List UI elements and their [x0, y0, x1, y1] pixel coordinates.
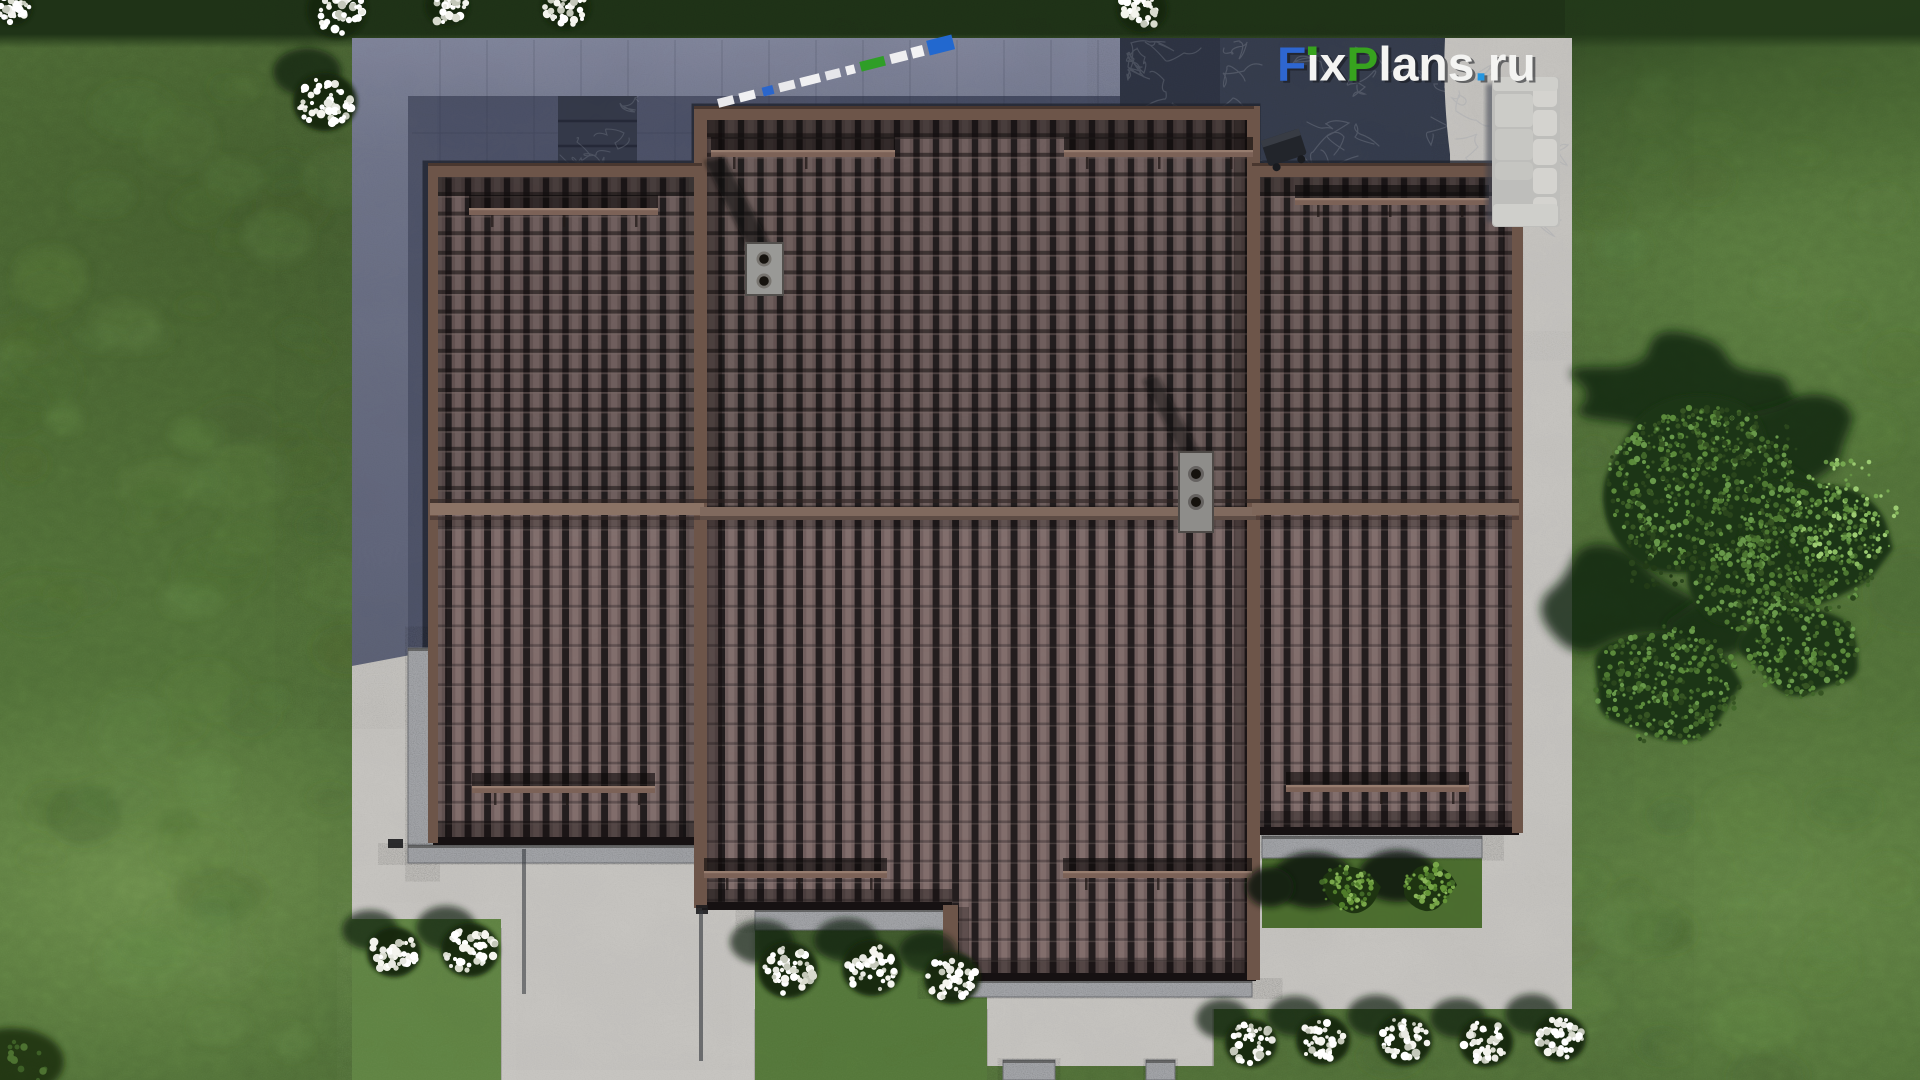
- svg-text:FıxPlans.ru: FıxPlans.ru: [1277, 39, 1536, 92]
